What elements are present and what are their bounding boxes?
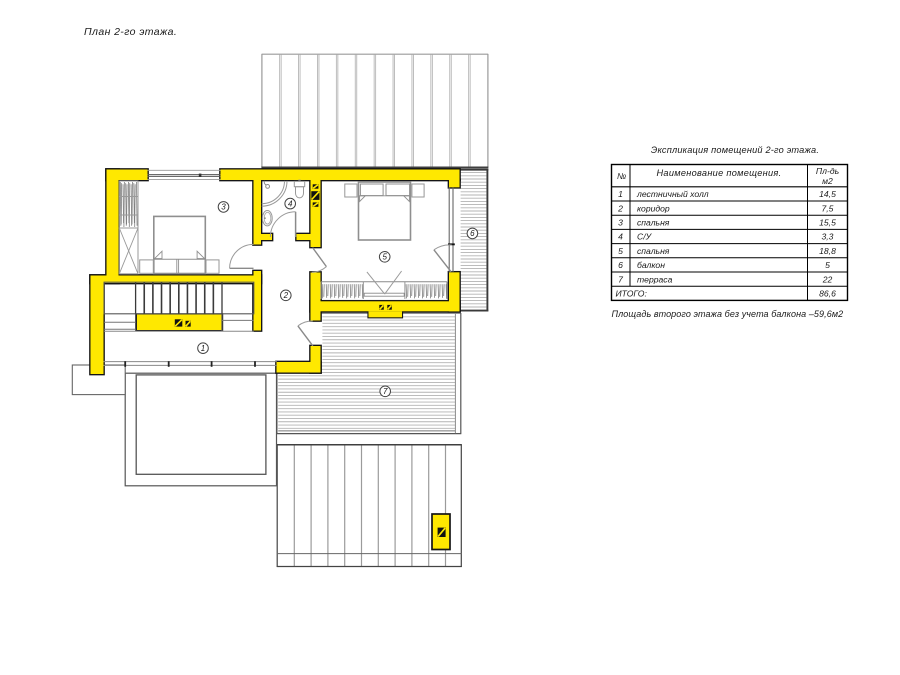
svg-text:С/У: С/У: [637, 232, 653, 242]
svg-text:4: 4: [618, 232, 623, 242]
svg-text:22: 22: [822, 274, 833, 284]
svg-text:3,3: 3,3: [822, 232, 834, 242]
svg-text:5: 5: [618, 246, 623, 256]
svg-text:6: 6: [470, 229, 475, 238]
svg-text:спальня: спальня: [637, 218, 670, 228]
svg-text:4: 4: [288, 199, 293, 208]
svg-text:План 2-го этажа.: План 2-го этажа.: [84, 26, 177, 38]
svg-text:лестничный холл: лестничный холл: [636, 189, 709, 199]
svg-text:7,5: 7,5: [822, 203, 834, 213]
svg-text:15,5: 15,5: [819, 218, 836, 228]
svg-text:Наименование помещения.: Наименование помещения.: [657, 168, 782, 178]
svg-text:№: №: [617, 171, 626, 181]
svg-text:6: 6: [618, 260, 623, 270]
svg-text:3: 3: [618, 218, 623, 228]
svg-text:Экспликация помещений 2-го эта: Экспликация помещений 2-го этажа.: [651, 145, 819, 155]
svg-text:Пл-дь: Пл-дь: [816, 166, 840, 176]
svg-text:86,6: 86,6: [819, 289, 836, 299]
svg-text:7: 7: [383, 387, 388, 396]
svg-text:Площадь второго этажа без учет: Площадь второго этажа без учета балкона …: [612, 309, 844, 319]
svg-text:18,8: 18,8: [819, 246, 836, 256]
svg-text:2: 2: [617, 203, 623, 213]
svg-text:м2: м2: [822, 176, 833, 186]
svg-text:ИТОГО:: ИТОГО:: [616, 289, 648, 299]
svg-text:терраса: терраса: [637, 274, 673, 284]
svg-text:балкон: балкон: [637, 260, 665, 270]
svg-text:2: 2: [283, 291, 289, 300]
svg-text:спальня: спальня: [637, 246, 670, 256]
svg-text:5: 5: [382, 253, 387, 262]
svg-text:14,5: 14,5: [819, 189, 836, 199]
svg-text:коридор: коридор: [637, 203, 670, 213]
svg-text:3: 3: [221, 203, 226, 212]
svg-text:1: 1: [201, 344, 205, 353]
svg-text:5: 5: [825, 260, 830, 270]
svg-text:1: 1: [618, 189, 623, 199]
